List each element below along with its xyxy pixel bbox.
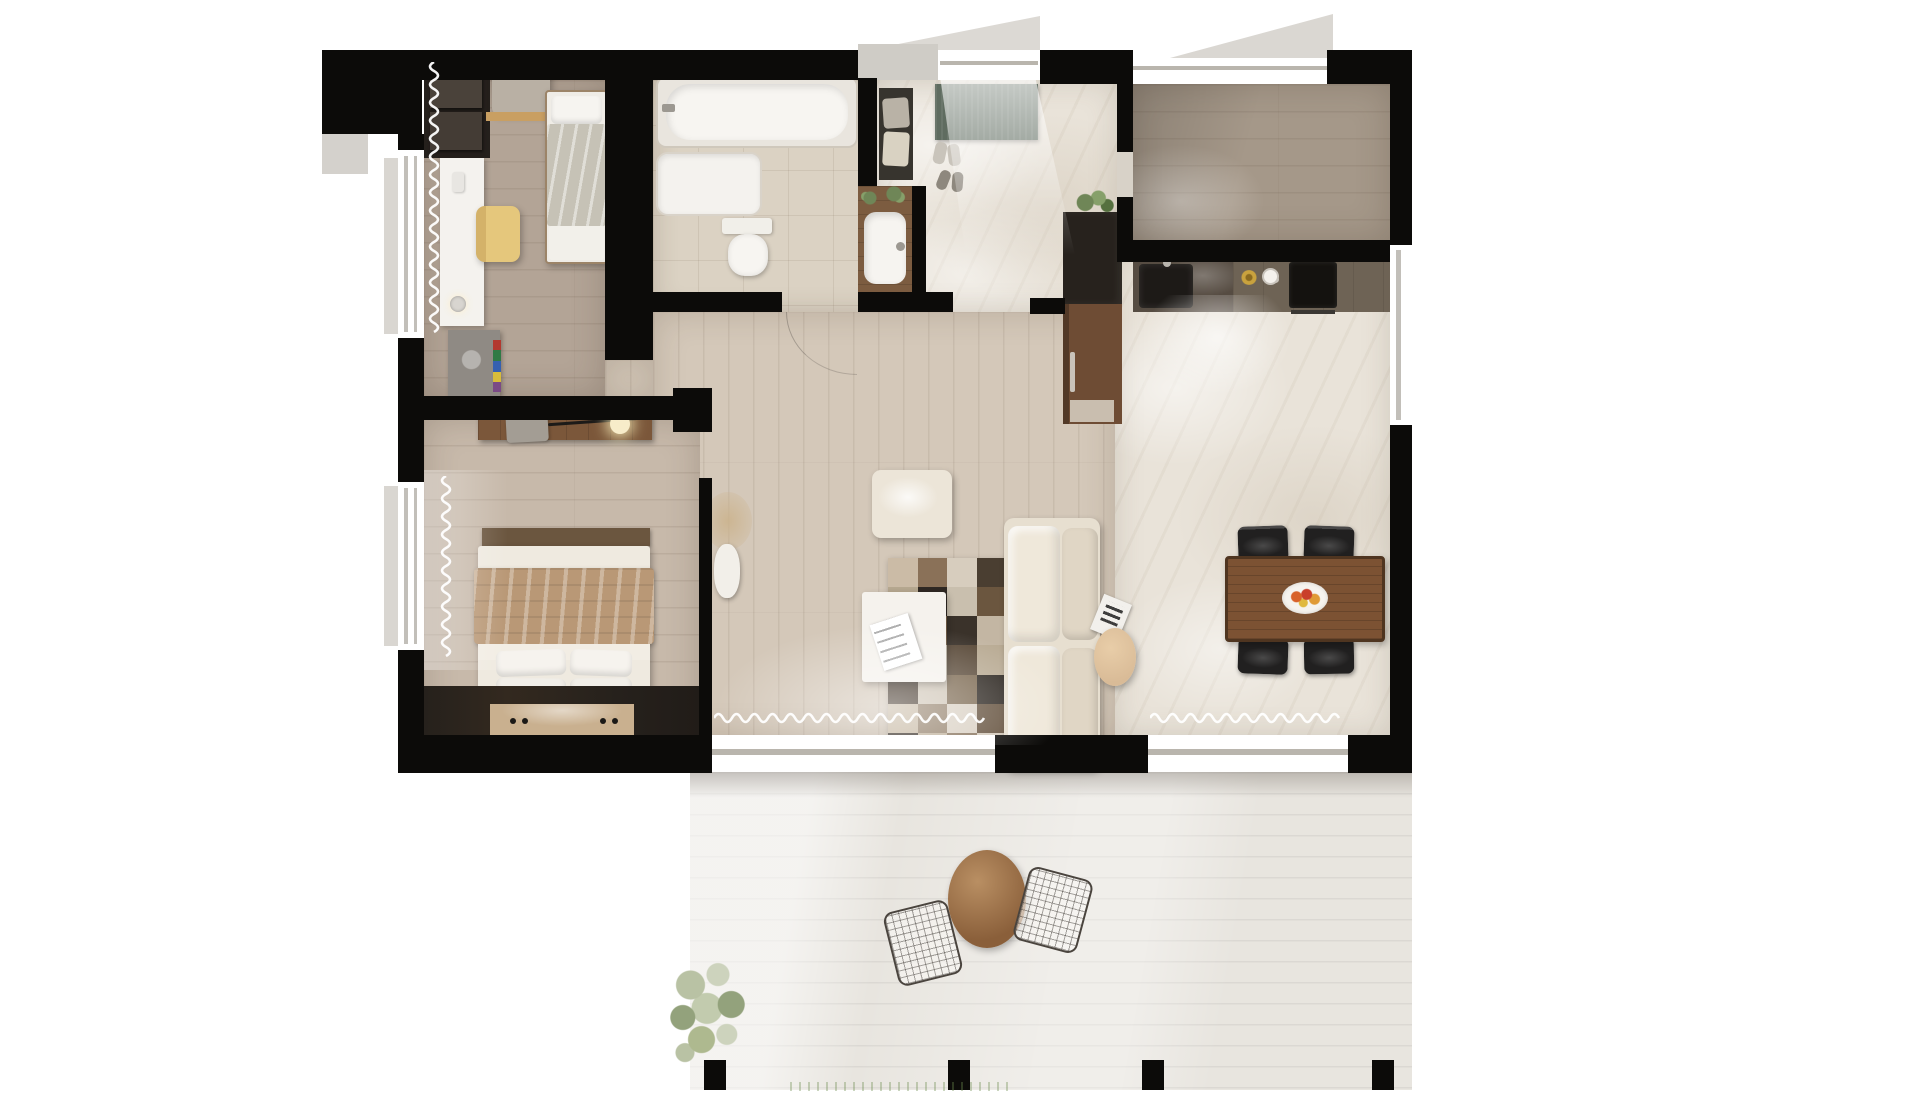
b1-desk-lamp <box>450 296 466 312</box>
wall-bottom-right <box>1348 735 1412 773</box>
bedroom1-door-gap-floor <box>605 360 653 398</box>
rug-cell-1 <box>918 558 948 587</box>
kitchen-sink <box>1139 264 1193 308</box>
flower-vase <box>714 544 740 598</box>
window-left-2-frame-a <box>404 488 408 644</box>
wall-top-main <box>422 50 858 80</box>
grass-tufts <box>790 1082 1010 1091</box>
coffee-cup <box>1262 268 1279 285</box>
rug-cell-18 <box>947 675 977 704</box>
window-left-1 <box>398 150 424 338</box>
wall-divider-junction <box>673 388 712 432</box>
dining-chair-bottom-left <box>1237 637 1288 675</box>
deck-post-4 <box>1372 1060 1394 1090</box>
wall-left-3 <box>398 650 424 736</box>
b1-desk-deco <box>452 172 464 192</box>
wall-bedroom2-right <box>699 478 712 736</box>
wall-left-1 <box>398 134 424 150</box>
b2-bench-handle-2 <box>522 718 528 724</box>
b2-bench-handle-1 <box>510 718 516 724</box>
b1-bed-foot <box>549 226 604 260</box>
b1-yellow-chair <box>476 206 520 262</box>
entry-bench-cloth-1 <box>882 97 910 129</box>
sliding-door-dining-glass <box>1148 749 1348 755</box>
bathtub-basin <box>666 84 848 140</box>
b1-bed-duvet <box>547 124 606 226</box>
fruits <box>1288 586 1322 610</box>
window-right-dining-frame <box>1396 250 1401 420</box>
wall-right-upper <box>1390 50 1412 245</box>
toilet-tank <box>722 218 772 234</box>
kitchen-cabinet-plant <box>1072 186 1116 216</box>
square-pouf <box>872 470 952 538</box>
curtain-bedroom2 <box>436 476 456 662</box>
deck-post-3 <box>1142 1060 1164 1090</box>
sofa-cushion-1 <box>1008 526 1060 642</box>
rug-cell-14 <box>947 645 977 674</box>
rug-cell-7 <box>977 587 1007 616</box>
dining-chair-bottom-right <box>1304 638 1355 675</box>
wall-bottom-mid <box>995 735 1148 773</box>
b2-pillow-1 <box>496 649 567 677</box>
window-left-1-frame-b <box>414 156 417 332</box>
wall-bedroom1-right <box>605 80 653 360</box>
wall-left-2 <box>398 338 424 482</box>
shower-tray <box>656 152 762 216</box>
floor-plan-canvas <box>0 0 1920 1097</box>
wall-hall-right-upper <box>1117 84 1133 152</box>
entry-shoe-2 <box>947 143 962 166</box>
entry-door-glass <box>940 61 1038 65</box>
toilet-bowl <box>728 234 768 276</box>
window-sill-2 <box>384 486 398 646</box>
entry-bench-clo th-2 <box>882 131 910 166</box>
b1-bed-pillow <box>551 96 602 124</box>
curtain-living-glass <box>714 708 992 728</box>
sliding-door-living-glass <box>712 749 995 755</box>
kitchen-tall-cabinet <box>1063 212 1122 304</box>
entry-door-gap <box>938 50 1040 80</box>
study-floor <box>1128 84 1390 240</box>
wall-corner-block-topleft <box>322 50 422 134</box>
wall-hall-right-lower <box>1117 197 1133 240</box>
cooktop-handle <box>1291 310 1335 314</box>
wall-hall-bottom <box>1030 298 1065 314</box>
wall-bathroom-right-upper <box>858 78 877 186</box>
round-pouf <box>1094 628 1136 686</box>
b2-bench-handle-4 <box>612 718 618 724</box>
b2-bed-headboard <box>482 528 650 546</box>
b2-bench-handle-3 <box>600 718 606 724</box>
terrace-tree <box>652 946 762 1076</box>
rug-cell-19 <box>977 675 1007 704</box>
curtain-bedroom1 <box>424 62 444 334</box>
b1-colorful-books <box>493 340 501 392</box>
gold-dish <box>1240 270 1258 285</box>
window-sill-1 <box>384 158 398 334</box>
b2-bed-blanket <box>474 568 654 644</box>
curtain-dining-glass <box>1150 708 1346 728</box>
rug-cell-0 <box>888 558 918 587</box>
wall-bedrooms-divider <box>424 396 712 420</box>
rug-cell-6 <box>947 587 977 616</box>
wall-bottom-left <box>398 735 712 773</box>
wall-bathroom-bottom-left <box>653 292 782 312</box>
pantry-door-handle <box>1070 352 1075 392</box>
wall-bathroom-bottom-right <box>858 292 953 312</box>
deck-post-1 <box>704 1060 726 1090</box>
study-top-window-glass <box>1133 66 1327 70</box>
bathtub-faucet <box>662 104 675 112</box>
entry-steps <box>858 44 938 82</box>
window-left-2 <box>398 482 424 650</box>
rug-cell-11 <box>977 616 1007 645</box>
rug-cell-15 <box>977 645 1007 674</box>
wall-entry-right-block <box>1040 50 1133 84</box>
rug-cell-2 <box>947 558 977 587</box>
kitchen-cooktop <box>1289 262 1337 308</box>
study-door-threshold <box>1117 152 1133 197</box>
rug-cell-10 <box>947 616 977 645</box>
window-left-1-frame-a <box>404 156 408 332</box>
wall-bathroom-right-lower <box>912 186 926 298</box>
entry-plant <box>884 184 906 206</box>
entry-shoe-4 <box>951 172 963 193</box>
vanity-plant <box>861 190 879 206</box>
window-left-2-frame-b <box>414 488 417 644</box>
wall-study-bottom <box>1117 240 1390 262</box>
kitchen-cabinet-bottom-shine <box>1070 400 1114 422</box>
wall-right-lower <box>1390 425 1412 737</box>
rug-cell-3 <box>977 558 1007 587</box>
corner-step-tab <box>322 134 368 174</box>
window-right-dining <box>1390 245 1412 425</box>
vanity-faucet <box>896 242 905 251</box>
entry-doormat <box>935 84 1038 140</box>
b2-pillow-2 <box>570 649 633 677</box>
